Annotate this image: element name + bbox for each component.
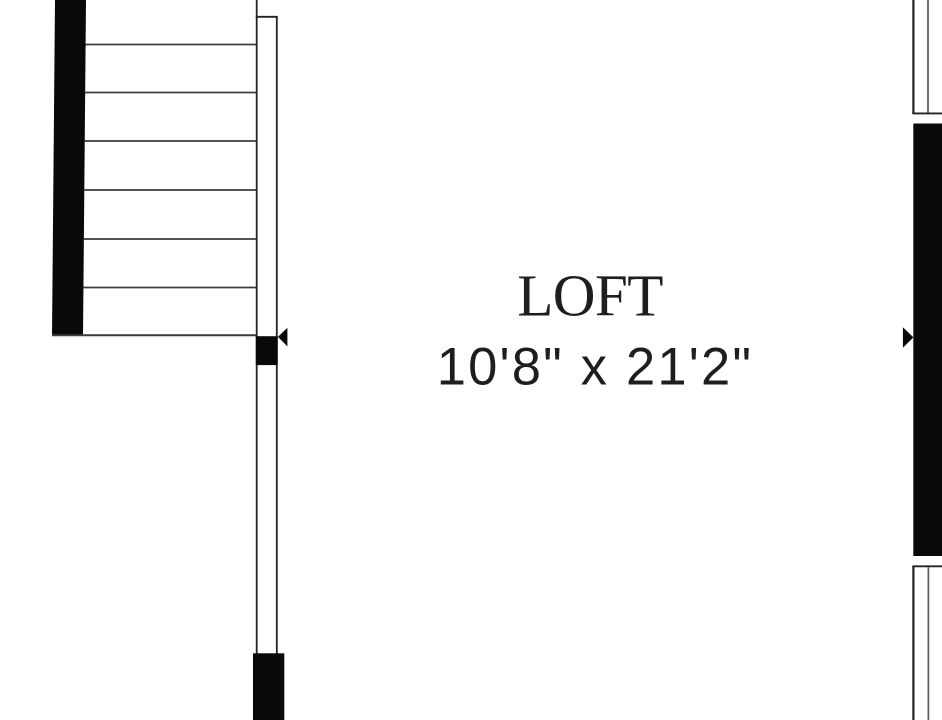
svg-text:10'8" x 21'2": 10'8" x 21'2" — [437, 338, 754, 397]
svg-text:LOFT: LOFT — [517, 262, 663, 328]
